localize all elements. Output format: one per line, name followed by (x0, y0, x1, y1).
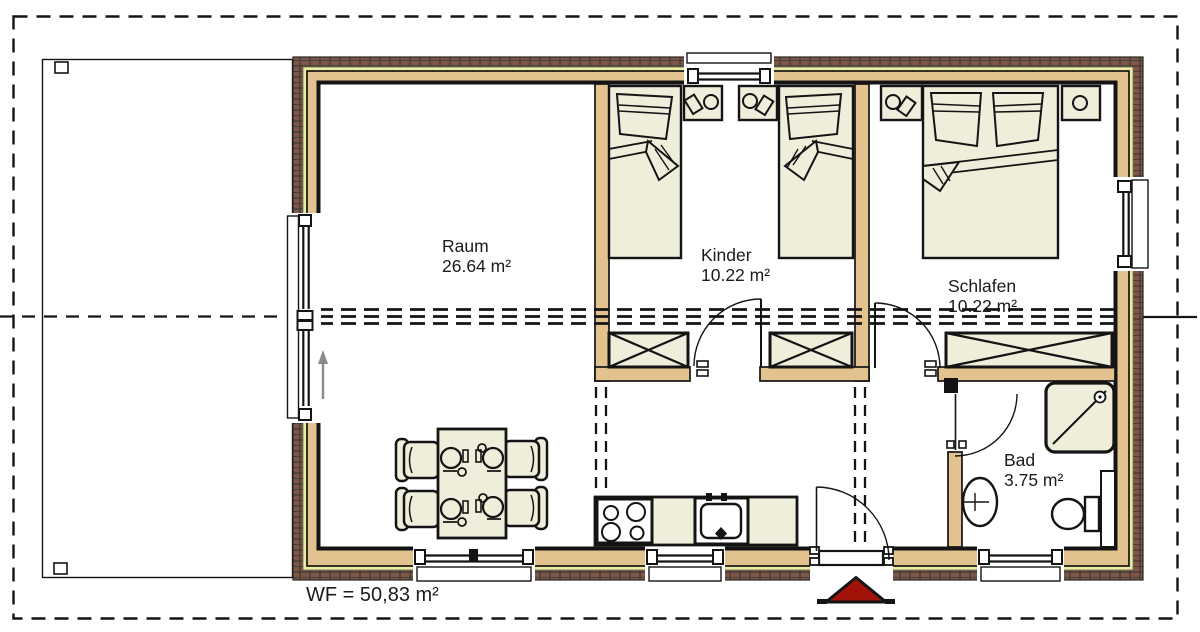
terrace-post-bottom (54, 563, 67, 574)
kitchen-counter (595, 493, 797, 545)
shower (1046, 383, 1114, 452)
nightstand-kinder-right (739, 86, 777, 120)
room-label-schlafen: Schlafen10.22 m² (948, 276, 1017, 316)
window-bottom-bath (977, 546, 1064, 582)
room-area: 10.22 m² (701, 265, 770, 285)
nightstand-schlafen-right (1062, 86, 1100, 120)
window-bottom-kitchen (645, 546, 725, 582)
window-top (684, 51, 774, 87)
room-name: Bad (1004, 450, 1035, 470)
wardrobe-kinder-left (609, 333, 688, 367)
wall-kinder-hall-left (595, 367, 690, 381)
wall-bad-left (948, 452, 962, 547)
kitchen-sink (695, 493, 748, 544)
terrace (43, 60, 293, 578)
room-name: Raum (442, 236, 489, 256)
floor-plan-drawing (0, 0, 1200, 632)
wall-kinder-schlafen (855, 84, 869, 381)
nightstand-kinder-left (684, 86, 722, 120)
wardrobe-kinder-right (770, 333, 852, 367)
bad-duct-stub (1101, 471, 1115, 547)
bathroom-sink (963, 478, 997, 526)
bed-single-right (779, 86, 853, 258)
window-right (1112, 177, 1152, 271)
total-area-label: WF = 50,83 m² (306, 585, 439, 605)
wardrobe-schlafen (946, 333, 1112, 367)
bed-single-left (609, 86, 681, 258)
wall-kinder-hall-right (760, 367, 869, 381)
room-area: 10.22 m² (948, 296, 1017, 316)
wall-corner-block (944, 378, 958, 393)
room-area: 3.75 m² (1004, 470, 1063, 490)
nightstand-schlafen-left (881, 86, 922, 120)
toilet (1052, 497, 1099, 531)
stove (597, 499, 652, 543)
room-label-bad: Bad3.75 m² (1004, 450, 1063, 490)
room-label-kinder: Kinder10.22 m² (701, 245, 770, 285)
floor-plan: Raum26.64 m² Kinder10.22 m² Schlafen10.2… (0, 0, 1200, 632)
room-name: Kinder (701, 245, 752, 265)
bed-double (923, 86, 1058, 258)
window-bottom-dining (413, 546, 535, 582)
room-label-raum: Raum26.64 m² (442, 236, 511, 276)
terrace-post-top (55, 62, 68, 73)
wall-schlafen-bad (938, 367, 1115, 381)
room-name: Schlafen (948, 276, 1016, 296)
wall-raum-kinder (595, 84, 609, 381)
room-area: 26.64 m² (442, 256, 511, 276)
